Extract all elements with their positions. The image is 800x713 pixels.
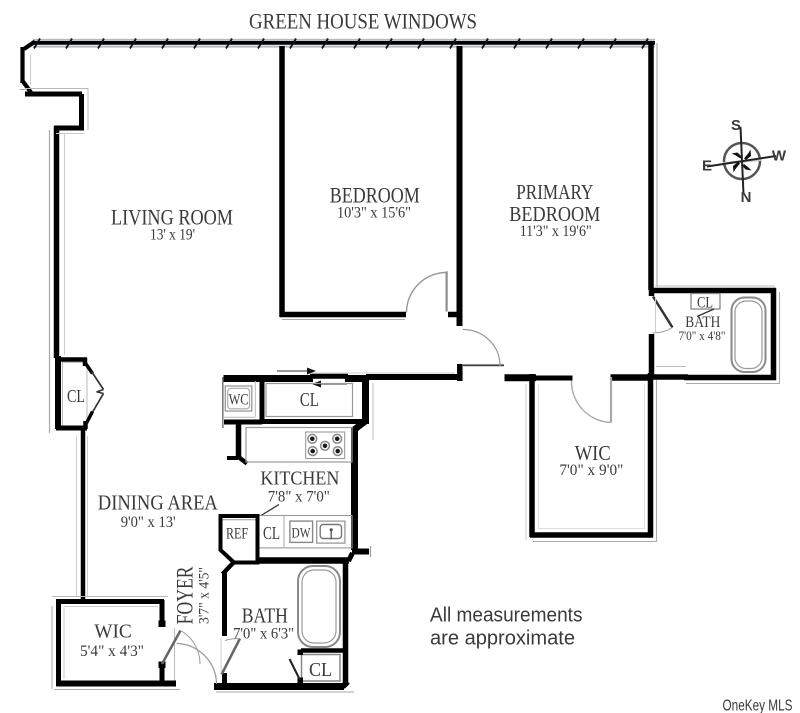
svg-text:W: W xyxy=(772,148,787,165)
svg-text:OneKey MLS: OneKey MLS xyxy=(723,698,793,713)
svg-text:are approximate: are approximate xyxy=(430,628,575,650)
svg-text:CL: CL xyxy=(309,659,332,681)
svg-text:3'7" x 4'5": 3'7" x 4'5" xyxy=(197,567,213,624)
svg-text:WC: WC xyxy=(229,392,249,409)
svg-text:N: N xyxy=(741,189,752,206)
svg-text:GREEN HOUSE WINDOWS: GREEN HOUSE WINDOWS xyxy=(249,9,477,34)
svg-text:REF: REF xyxy=(226,526,248,543)
svg-text:KITCHEN: KITCHEN xyxy=(260,468,339,490)
svg-text:PRIMARY: PRIMARY xyxy=(516,180,593,204)
svg-text:WIC: WIC xyxy=(94,622,132,643)
svg-text:7'8" x 7'0": 7'8" x 7'0" xyxy=(268,489,330,506)
svg-text:5'4" x 4'3": 5'4" x 4'3" xyxy=(80,643,144,660)
svg-text:CL: CL xyxy=(697,295,713,312)
svg-text:E: E xyxy=(702,158,712,175)
svg-text:FOYER: FOYER xyxy=(173,566,198,625)
svg-text:CL: CL xyxy=(67,386,85,406)
svg-text:DW: DW xyxy=(292,526,312,542)
svg-text:BATH: BATH xyxy=(242,604,288,628)
svg-text:7'0" x 4'8": 7'0" x 4'8" xyxy=(679,329,726,343)
svg-text:10'3" x 15'6": 10'3" x 15'6" xyxy=(337,205,411,222)
svg-text:9'0" x 13': 9'0" x 13' xyxy=(121,514,176,531)
svg-text:CL: CL xyxy=(263,523,280,543)
svg-text:CL: CL xyxy=(300,389,319,411)
svg-text:13' x 19': 13' x 19' xyxy=(150,227,195,244)
svg-text:All measurements: All measurements xyxy=(430,605,583,627)
svg-text:S: S xyxy=(731,117,741,134)
svg-text:DINING AREA: DINING AREA xyxy=(98,491,219,515)
svg-text:7'0" x 9'0": 7'0" x 9'0" xyxy=(559,462,623,479)
svg-text:11'3" x 19'6": 11'3" x 19'6" xyxy=(520,223,592,240)
svg-text:7'0" x 6'3": 7'0" x 6'3" xyxy=(233,626,294,643)
